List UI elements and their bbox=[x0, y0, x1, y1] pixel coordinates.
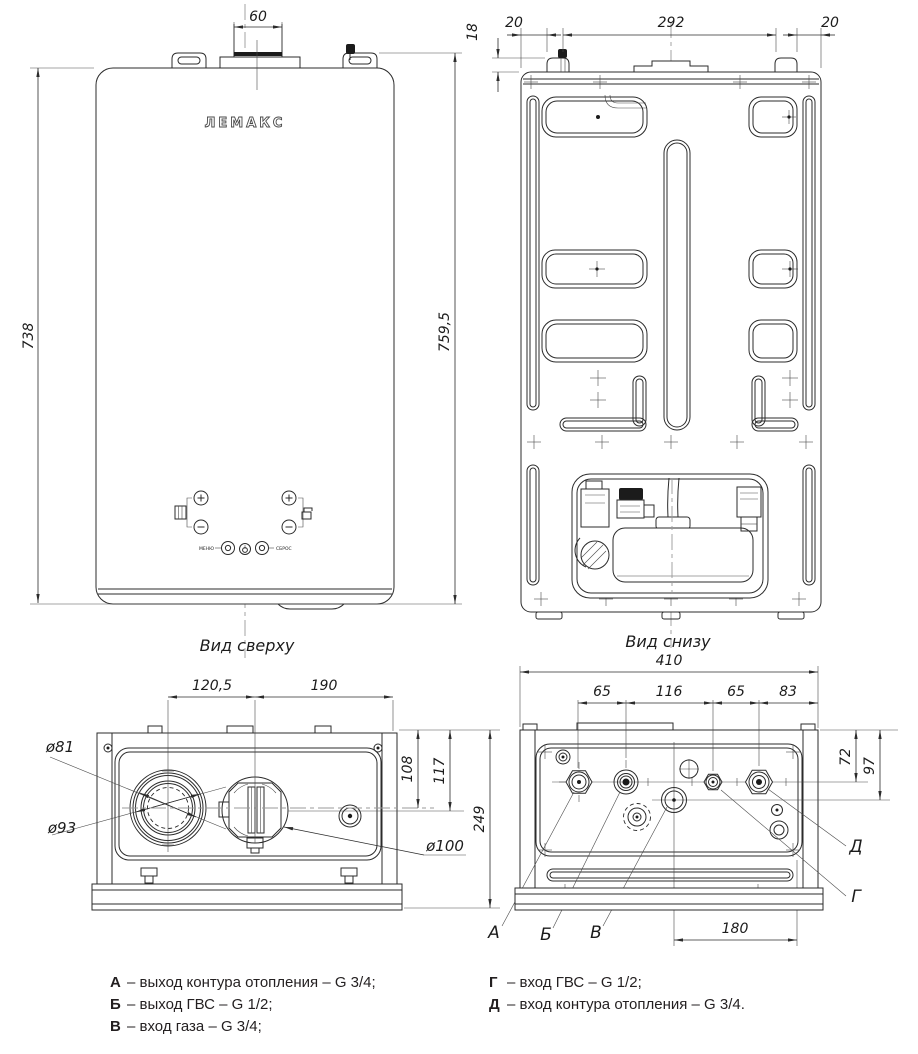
base-plate bbox=[92, 884, 402, 910]
legend-letter: Б bbox=[110, 996, 121, 1013]
legend-letter: В bbox=[110, 1018, 121, 1035]
filling-valve bbox=[624, 804, 651, 831]
port-label-d: Д bbox=[848, 837, 862, 857]
flue-boss bbox=[634, 61, 708, 72]
reset-button-label: СБРОС bbox=[276, 546, 292, 552]
bottom-view: Вид снизу 410 bbox=[487, 632, 898, 946]
legend-item: А – выход контура отопления – G 3/4; bbox=[110, 974, 376, 991]
port-label-v: В bbox=[590, 923, 602, 943]
dim-right-offset: 20 bbox=[821, 15, 839, 31]
dim-hook-depth: 18 bbox=[465, 23, 481, 41]
dim-hook-span: 292 bbox=[658, 15, 685, 31]
dim-v97: 97 bbox=[862, 757, 878, 775]
dim-gas-edge: 180 bbox=[722, 921, 749, 937]
boiler-dimension-drawing: ЛЕМАКС МЕНЮ СБРОС 60 bbox=[0, 0, 918, 1054]
legend-item: В – вход газа – G 3/4; bbox=[110, 1018, 262, 1035]
top-view-label: Вид сверху bbox=[200, 636, 295, 655]
dim-left-offset: 20 bbox=[505, 15, 523, 31]
back-view: 18 20 292 20 bbox=[465, 15, 839, 648]
air-vent-cap bbox=[346, 44, 355, 54]
legend-item: Б – выход ГВС – G 1/2; bbox=[110, 996, 273, 1013]
top-view: Вид сверху ø81 ø93 bbox=[45, 636, 500, 910]
dim-depth: 249 bbox=[472, 806, 488, 833]
legend-letter: Г bbox=[489, 974, 498, 991]
port-g-fitting bbox=[704, 774, 722, 790]
dim-flue-center: 120,5 bbox=[192, 678, 232, 694]
legend-text: – вход контура отопления – G 3/4. bbox=[507, 996, 745, 1013]
dim-flue-width: 60 bbox=[249, 9, 267, 25]
base-plate bbox=[515, 888, 823, 910]
port-v-fitting bbox=[662, 788, 687, 813]
left-hook bbox=[547, 58, 569, 72]
dim-v117: 117 bbox=[432, 758, 448, 785]
brand-logo: ЛЕМАКС bbox=[205, 116, 286, 131]
bottom-view-label: Вид снизу bbox=[625, 632, 711, 651]
legend: А – выход контура отопления – G 3/4; Б –… bbox=[110, 974, 745, 1035]
dim-d93: ø93 bbox=[47, 819, 76, 837]
dim-height-right: 759,5 bbox=[437, 312, 453, 352]
dim-d100: ø100 bbox=[425, 837, 464, 855]
menu-button-label: МЕНЮ bbox=[199, 546, 214, 552]
legend-text: – выход ГВС – G 1/2; bbox=[127, 996, 273, 1013]
dim-g-d: 65 bbox=[727, 684, 745, 700]
dim-d-edge: 83 bbox=[779, 684, 797, 700]
dim-b-g: 116 bbox=[656, 684, 683, 700]
union-nut bbox=[656, 517, 690, 529]
right-hook bbox=[775, 58, 797, 72]
legend-text: – вход ГВС – G 1/2; bbox=[507, 974, 642, 991]
port-label-b: Б bbox=[540, 925, 552, 945]
boiler-front-body bbox=[96, 68, 394, 604]
legend-text: – выход контура отопления – G 3/4; bbox=[127, 974, 376, 991]
legend-item: Г – вход ГВС – G 1/2; bbox=[489, 974, 642, 991]
legend-letter: Д bbox=[489, 996, 500, 1013]
legend-text: – вход газа – G 3/4; bbox=[127, 1018, 262, 1035]
legend-item: Д – вход контура отопления – G 3/4. bbox=[489, 996, 745, 1013]
dim-a-b: 65 bbox=[593, 684, 611, 700]
dim-v108: 108 bbox=[400, 756, 416, 783]
technical-drawing-page: ЛЕМАКС МЕНЮ СБРОС 60 bbox=[0, 0, 918, 1054]
port-label-g: Г bbox=[851, 887, 862, 907]
dim-v72: 72 bbox=[838, 748, 854, 766]
dim-flue-to-edge: 190 bbox=[311, 678, 338, 694]
front-view: ЛЕМАКС МЕНЮ СБРОС 60 bbox=[21, 4, 462, 658]
legend-letter: А bbox=[110, 974, 121, 991]
bottom-lip bbox=[278, 604, 344, 609]
flue-collar bbox=[220, 57, 300, 68]
dim-height-left: 738 bbox=[21, 323, 37, 350]
valve-motor bbox=[619, 488, 643, 500]
dim-width: 410 bbox=[656, 653, 683, 669]
port-label-a: А bbox=[487, 923, 500, 943]
hydraulic-cutout bbox=[572, 474, 768, 598]
dim-d81: ø81 bbox=[45, 738, 74, 756]
expansion-tank bbox=[613, 528, 753, 582]
